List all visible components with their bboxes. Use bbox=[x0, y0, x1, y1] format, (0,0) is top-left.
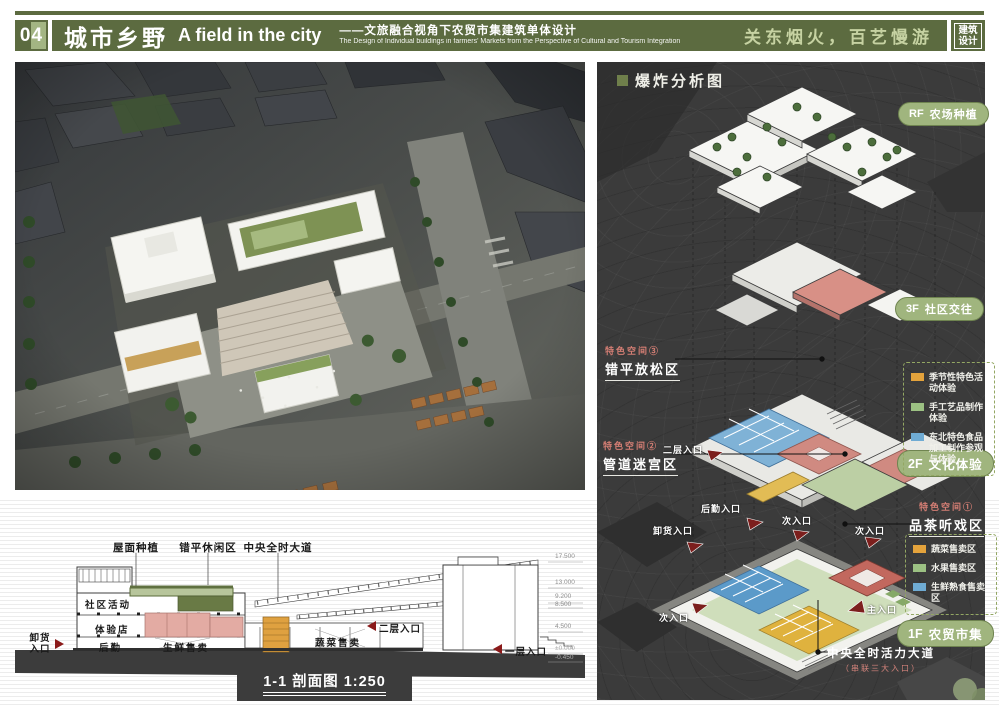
legend-label: 蔬菜售卖区 bbox=[931, 544, 976, 555]
room-community: 社区活动 bbox=[85, 597, 131, 611]
discipline-badge-frame: 建筑 设计 bbox=[954, 23, 981, 49]
legend-2f: 季节性特色活动体验 手工艺品制作体验 东北特色食品加工制作参观与体验 bbox=[903, 362, 995, 476]
page-number: 04 bbox=[15, 20, 48, 51]
secondary-entrance-b-icon bbox=[865, 537, 881, 548]
legend-item: 水果售卖区 bbox=[913, 563, 989, 574]
elevation-4500: 4.500 bbox=[555, 623, 571, 630]
swatch-orange-icon bbox=[911, 373, 924, 381]
header-rule bbox=[15, 11, 984, 15]
legend-label: 水果售卖区 bbox=[931, 563, 976, 574]
axon-title-block: 爆炸分析图 bbox=[617, 70, 725, 91]
section-label-roof-planting: 屋面种植 bbox=[113, 540, 159, 555]
badge-line-2: 设计 bbox=[958, 36, 977, 47]
roof-level-plates bbox=[689, 87, 917, 214]
legend-item: 蔬菜售卖区 bbox=[913, 544, 989, 555]
entrance-label-secondary-c: 次入口 bbox=[659, 611, 689, 624]
legend-item: 生鲜熟食售卖区 bbox=[913, 582, 989, 604]
unloading-entrance-icon bbox=[687, 542, 703, 553]
feature-3-label: 错平放松区 bbox=[605, 359, 680, 381]
room-vegetable: 蔬菜售卖 bbox=[315, 635, 361, 649]
entrance-label-logistics: 后勤入口 bbox=[701, 502, 741, 515]
subtitle-english: The Design of Individual buildings in fa… bbox=[339, 38, 680, 46]
floor-code-1f: 1F bbox=[908, 627, 923, 641]
floor-code-rf: RF bbox=[909, 108, 924, 120]
avenue-sublabel: （串联三大入口） bbox=[827, 663, 935, 674]
entrance-label-unloading: 卸货入口 bbox=[653, 524, 693, 537]
entrance-unload: 卸货入口 bbox=[29, 633, 51, 655]
subtitle-chinese: ——文旅融合视角下农贸市集建筑单体设计 bbox=[339, 25, 680, 38]
legend-1f: 蔬菜售卖区 水果售卖区 生鲜熟食售卖区 bbox=[905, 534, 997, 615]
floor-code-3f: 3F bbox=[906, 303, 919, 315]
elevation-0000: ±0.000 bbox=[555, 645, 575, 652]
elevation-neg-0450: -0.450 bbox=[555, 654, 573, 661]
legend-label: 生鲜熟食售卖区 bbox=[931, 582, 989, 604]
floor-pill-3f: 3F 社区交往 bbox=[895, 297, 984, 321]
room-fresh-food: 生鲜售卖 bbox=[163, 640, 209, 654]
unload-arrow-icon bbox=[55, 639, 64, 649]
section-label-terrace: 错平休闲区 bbox=[179, 540, 237, 555]
aerial-render-svg bbox=[15, 62, 585, 490]
swatch-blue-icon bbox=[913, 583, 926, 591]
secondary-entrance-a-icon bbox=[793, 530, 809, 541]
slogan: 关东烟火，百艺慢游 bbox=[744, 23, 933, 48]
exploded-axon-panel: 爆炸分析图 RF 农场种植 3F 社区交往 2F 文化体验 1F 农贸市集 季节… bbox=[597, 62, 985, 700]
entrance-label-secondary-b: 次入口 bbox=[855, 524, 885, 537]
entrance-label-secondary-a: 次入口 bbox=[782, 514, 812, 527]
avenue-label-block: 中央全时活力大道 （串联三大入口） bbox=[827, 645, 935, 674]
room-experience-shop: 体验店 bbox=[95, 622, 130, 636]
header-bar: 城市乡野 A field in the city ——文旅融合视角下农贸市集建筑… bbox=[52, 20, 947, 51]
section-drawing-panel: 屋面种植 错平休闲区 中央全时大道 社区活动 体验店 后勤 生鲜售卖 蔬菜售卖 … bbox=[15, 497, 585, 702]
swatch-blue-icon bbox=[911, 433, 924, 441]
avenue-label: 中央全时活力大道 bbox=[827, 645, 935, 661]
legend-label: 手工艺品制作体验 bbox=[929, 402, 987, 424]
floor-pill-rf: RF 农场种植 bbox=[898, 102, 989, 126]
legend-item: 季节性特色活动体验 bbox=[911, 372, 987, 394]
swatch-green-icon bbox=[913, 564, 926, 572]
entrance-label-second-floor: 二层入口 bbox=[663, 443, 703, 456]
feature-1-label: 品茶听戏区 bbox=[909, 515, 984, 537]
floor-label-3f: 社区交往 bbox=[925, 301, 973, 317]
subtitle-block: ——文旅融合视角下农贸市集建筑单体设计 The Design of Indivi… bbox=[339, 25, 680, 46]
feature-1: 特色空间① 品茶听戏区 bbox=[909, 500, 984, 537]
title-bullet-icon bbox=[617, 75, 628, 86]
elevation-9200: 9.200 bbox=[555, 593, 571, 600]
elevation-8500: 8.500 bbox=[555, 601, 571, 608]
floor-label-1f: 农贸市集 bbox=[929, 624, 983, 643]
entrance-second-floor: 二层入口 bbox=[379, 621, 421, 635]
entrance-label-main: 主入口 bbox=[867, 603, 897, 616]
section-label-avenue: 中央全时大道 bbox=[244, 540, 313, 555]
swatch-orange-icon bbox=[913, 545, 926, 553]
legend-label: 东北特色食品加工制作参观与体验 bbox=[929, 432, 987, 465]
elevation-17500: 17.500 bbox=[555, 553, 575, 560]
aerial-render-image bbox=[15, 62, 585, 490]
floor-label-rf: 农场种植 bbox=[930, 106, 978, 122]
elevation-13000: 13.000 bbox=[555, 579, 575, 586]
entrance-first-floor: 一层入口 bbox=[505, 644, 547, 658]
page-number-box: 04 bbox=[15, 20, 48, 51]
discipline-badge: 建筑 设计 bbox=[951, 20, 985, 51]
feature-1-tag: 特色空间① bbox=[909, 500, 984, 513]
legend-label: 季节性特色活动体验 bbox=[929, 372, 987, 394]
title-chinese: 城市乡野 bbox=[64, 19, 168, 53]
room-logistics: 后勤 bbox=[99, 640, 122, 654]
feature-3-tag: 特色空间③ bbox=[605, 344, 680, 357]
poster-page: 04 城市乡野 A field in the city ——文旅融合视角下农贸市… bbox=[0, 0, 999, 708]
axon-title: 爆炸分析图 bbox=[635, 70, 725, 91]
swatch-green-icon bbox=[911, 403, 924, 411]
legend-item: 手工艺品制作体验 bbox=[911, 402, 987, 424]
feature-3: 特色空间③ 错平放松区 bbox=[605, 344, 680, 381]
badge-line-1: 建筑 bbox=[958, 25, 977, 36]
section-title: 1-1 剖面图 1:250 bbox=[237, 670, 412, 691]
floor-pill-1f: 1F 农贸市集 bbox=[897, 620, 994, 647]
title-english: A field in the city bbox=[178, 25, 321, 46]
logistics-entrance-icon bbox=[747, 518, 763, 530]
feature-2-label: 管道迷宫区 bbox=[603, 454, 678, 476]
legend-item: 东北特色食品加工制作参观与体验 bbox=[911, 432, 987, 465]
